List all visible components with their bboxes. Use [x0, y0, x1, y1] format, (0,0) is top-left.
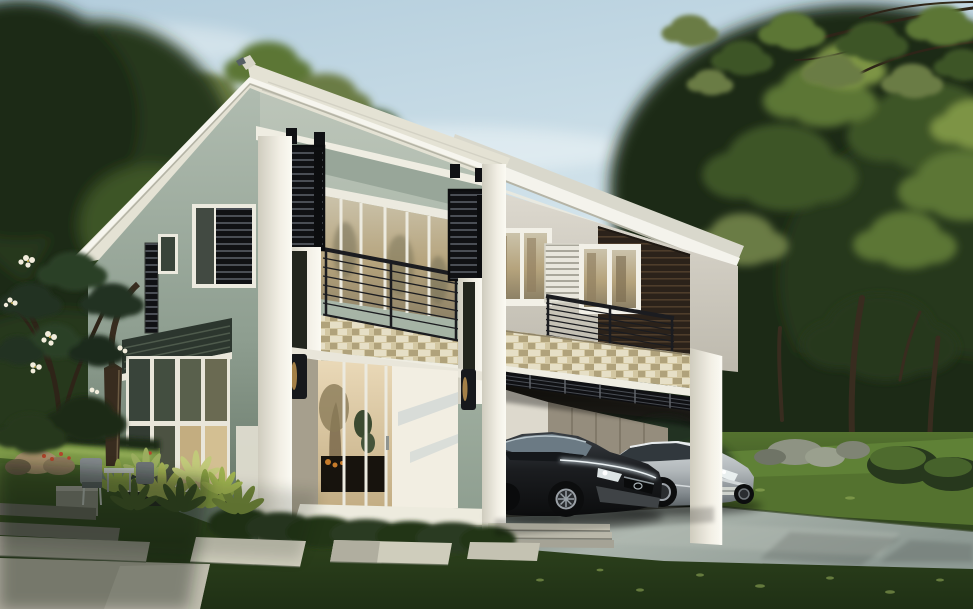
- column-center: [482, 164, 506, 544]
- balcony-left: [320, 186, 460, 373]
- column-front-left: [258, 136, 292, 544]
- small-window: [158, 234, 178, 274]
- paver: [467, 542, 540, 561]
- porch-bright-wall: [392, 366, 458, 510]
- upper-window-louvred: [192, 204, 256, 288]
- rendered-photo: [0, 0, 973, 609]
- white-louvre-siding: [545, 244, 583, 302]
- vent-louvres: [145, 243, 158, 333]
- sliding-glass-doors: [318, 360, 392, 512]
